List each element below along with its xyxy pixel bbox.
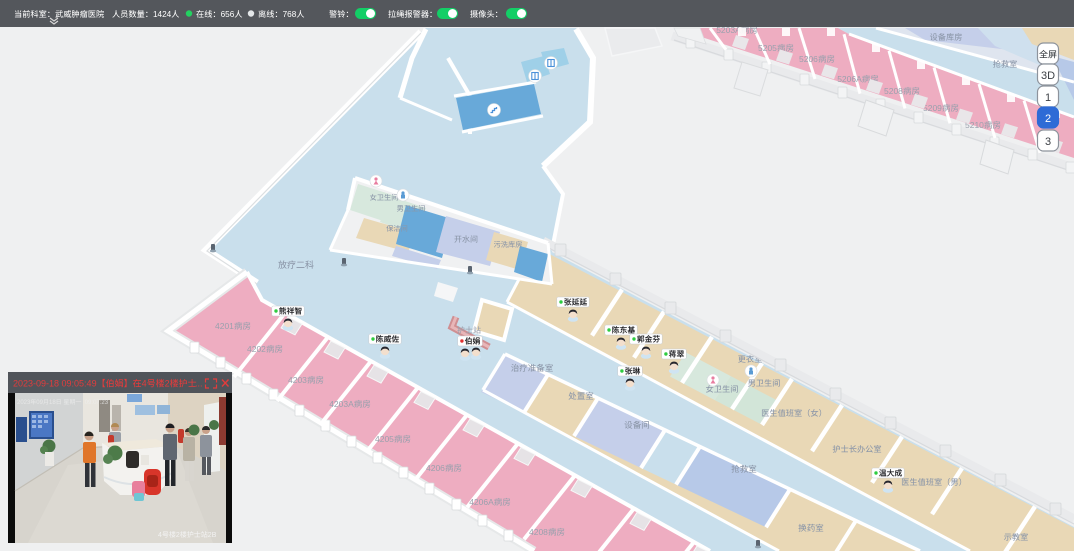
svg-text:2023-09-18 09:05:49: 2023-09-18 09:05:49 — [13, 379, 97, 389]
svg-text:09: 09 — [36, 400, 43, 406]
svg-text:768: 768 — [283, 10, 297, 19]
svg-text:5206A: 5206A — [837, 74, 862, 84]
svg-text:4: 4 — [158, 532, 162, 539]
svg-text:09:07:23: 09:07:23 — [81, 400, 108, 406]
svg-text:3D: 3D — [1041, 70, 1055, 82]
svg-text:2: 2 — [176, 532, 180, 539]
svg-text:5208: 5208 — [884, 86, 903, 96]
svg-text:2B: 2B — [208, 532, 217, 539]
svg-text:4206A: 4206A — [469, 497, 494, 507]
svg-text:5209: 5209 — [923, 103, 942, 113]
svg-text:18: 18 — [49, 400, 56, 406]
svg-text:...: ... — [195, 379, 203, 389]
svg-text:5206: 5206 — [799, 54, 818, 64]
svg-text:2: 2 — [1045, 113, 1051, 125]
svg-text:2023: 2023 — [17, 400, 31, 406]
svg-text:4205: 4205 — [375, 434, 394, 444]
svg-text:656: 656 — [221, 10, 235, 19]
svg-text:4203: 4203 — [288, 375, 307, 385]
svg-text:4: 4 — [142, 379, 147, 389]
svg-text:5205: 5205 — [758, 43, 777, 53]
svg-text:4202: 4202 — [247, 344, 266, 354]
svg-text:4201: 4201 — [215, 321, 234, 331]
svg-text:3: 3 — [1045, 136, 1051, 148]
svg-text:4203A: 4203A — [329, 399, 354, 409]
svg-text:1424: 1424 — [153, 10, 172, 19]
svg-text:4206: 4206 — [426, 463, 445, 473]
svg-text:1: 1 — [1045, 92, 1051, 104]
svg-text:2: 2 — [165, 379, 170, 389]
svg-text:4208: 4208 — [529, 527, 548, 537]
